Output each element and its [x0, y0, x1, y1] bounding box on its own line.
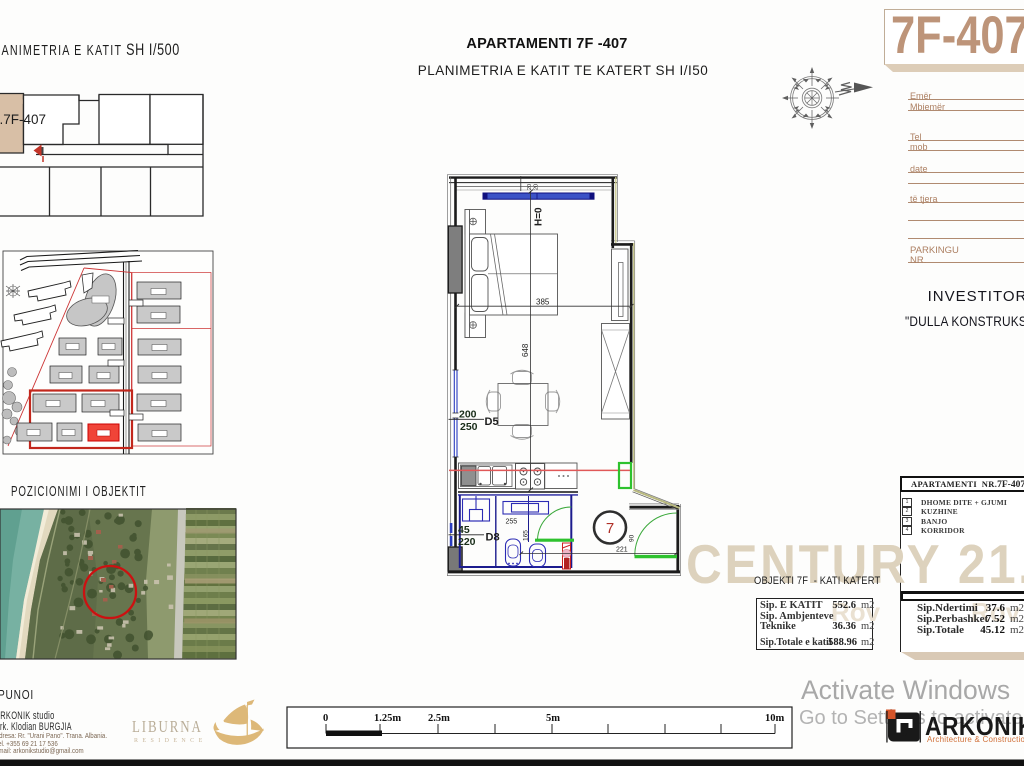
svg-text:220: 220: [458, 536, 476, 548]
svg-text:255: 255: [506, 519, 518, 526]
svg-text:7: 7: [606, 520, 614, 537]
svg-text:10m: 10m: [765, 713, 785, 724]
svg-text:250: 250: [460, 421, 478, 433]
svg-text:385: 385: [536, 298, 550, 307]
svg-text:5m: 5m: [546, 713, 560, 724]
svg-text:D8: D8: [486, 532, 500, 544]
svg-text:H=0: H=0: [534, 207, 545, 226]
svg-text:D5: D5: [485, 416, 499, 428]
svg-text:1.25m: 1.25m: [374, 713, 401, 724]
svg-text:200: 200: [459, 409, 477, 421]
svg-text:90: 90: [629, 534, 636, 542]
svg-text:20: 20: [527, 184, 533, 190]
svg-text:648: 648: [521, 343, 530, 357]
svg-text:45: 45: [458, 524, 470, 536]
svg-text:2.5m: 2.5m: [428, 713, 450, 724]
svg-text:165: 165: [523, 530, 530, 541]
svg-text:0: 0: [323, 713, 328, 724]
svg-text:20: 20: [534, 184, 540, 190]
svg-text:p.7F-407: p.7F-407: [0, 112, 46, 127]
svg-text:221: 221: [616, 547, 628, 554]
